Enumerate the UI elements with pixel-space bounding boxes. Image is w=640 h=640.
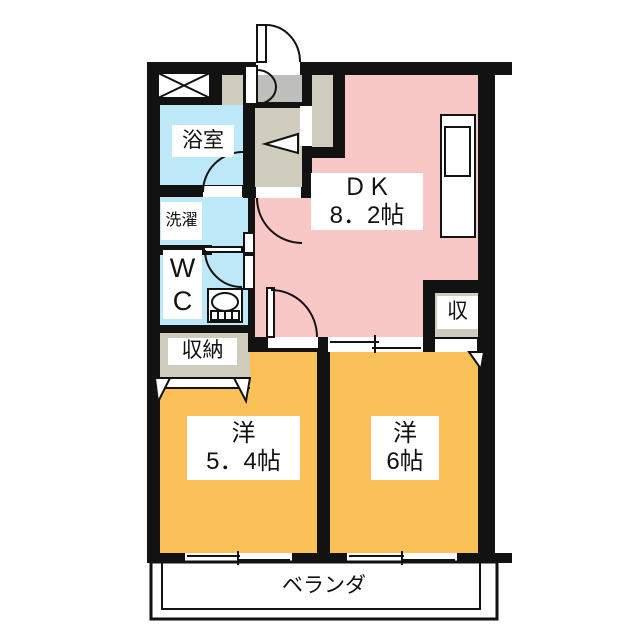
wall-bedroom-divider (317, 337, 330, 553)
utility-box-floor (222, 73, 243, 105)
wall-hallcloset-right (333, 62, 345, 158)
closet-small-label-text: 収 (447, 300, 468, 324)
veranda-label-text: ベランダ (282, 574, 366, 598)
veranda-label: ベランダ (270, 572, 378, 600)
toilet-bowl-icon (212, 293, 238, 311)
wc-door-jamb-upper (244, 233, 254, 253)
bedroom2-label: 洋 6帖 (371, 416, 439, 480)
hall-closet-opening (300, 106, 312, 146)
bedroom1-label-name: 洋 (232, 420, 256, 448)
wall-meterbox-right (210, 73, 222, 98)
shoe-cabinet-doors (245, 66, 257, 104)
bedroom2-label-name: 洋 (393, 420, 417, 448)
dk-label-name: ＤＫ (343, 174, 391, 202)
dk-label-size: 8．2帖 (330, 202, 405, 230)
bedroom1-label: 洋 5．4帖 (187, 416, 300, 480)
hall-closet-floor (312, 73, 333, 147)
kitchen-sink (445, 127, 470, 176)
dk-floor-left (255, 198, 312, 337)
closet-small-label: 収 (437, 296, 478, 329)
entry-opening (256, 62, 300, 75)
wc-door-jamb-lower (244, 255, 254, 289)
floor-plan: 浴室 洗濯 W C ＤＫ 8．2帖 収納 収 洋 5．4帖 洋 6帖 ベランダ (0, 0, 640, 640)
entry-door-arc (266, 25, 300, 62)
wall-right (478, 62, 495, 563)
bathroom-label: 浴室 (172, 125, 234, 157)
wc-label-line1: W (170, 252, 195, 284)
closet-main-label-text: 収納 (182, 339, 224, 363)
wc-label-line2: C (173, 285, 193, 317)
closet-main-opening-bottom-line (160, 387, 250, 389)
wall-hallcloset-bottom (302, 147, 345, 158)
wall-wc-bottom (147, 325, 255, 333)
bedroom1-door-opening (268, 337, 318, 348)
wall-left (147, 62, 160, 563)
closet-main-label: 収納 (168, 338, 237, 365)
hall-dk-opening (256, 187, 301, 198)
genkan-floor (255, 73, 302, 105)
wall-closet-small-left (423, 280, 435, 352)
closet-small-opening (435, 339, 477, 352)
wc-door-leaf (204, 247, 242, 252)
laundry-label: 洗濯 (161, 202, 202, 240)
wc-label: W C (163, 250, 202, 319)
wall-below-meterbox (147, 98, 222, 105)
bedroom1-door-leaf (267, 288, 274, 337)
bathroom-label-text: 浴室 (182, 129, 224, 153)
dk-label: ＤＫ 8．2帖 (311, 173, 423, 230)
bedroom2-label-size: 6帖 (386, 448, 423, 476)
bathroom-door-opening (203, 186, 242, 197)
laundry-label-text: 洗濯 (165, 212, 197, 230)
floor-plan-drawing (0, 0, 640, 640)
bedroom1-label-size: 5．4帖 (206, 448, 281, 476)
entry-door-leaf (257, 25, 266, 62)
